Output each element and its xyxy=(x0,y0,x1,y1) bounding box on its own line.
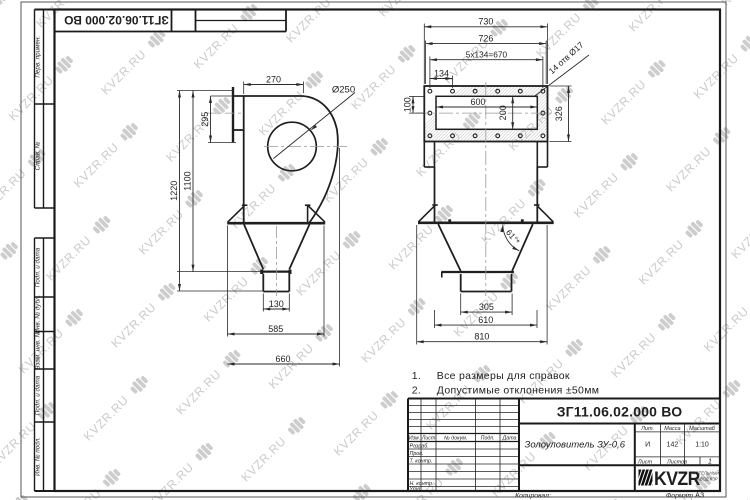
svg-text:И: И xyxy=(645,442,650,449)
svg-text:Дата: Дата xyxy=(502,436,517,442)
svg-text:Перв. примен.: Перв. примен. xyxy=(35,36,42,78)
svg-text:142: 142 xyxy=(667,442,679,449)
svg-text:100: 100 xyxy=(403,97,413,112)
svg-text:Все размеры для справок: Все размеры для справок xyxy=(437,370,570,382)
svg-text:134: 134 xyxy=(434,68,449,78)
svg-text:585: 585 xyxy=(268,324,283,334)
svg-text:726: 726 xyxy=(478,33,493,43)
svg-text:КОТЕЛЬНЫЙ: КОТЕЛЬНЫЙ xyxy=(693,471,719,476)
svg-text:326: 326 xyxy=(554,106,564,121)
svg-text:Справ. №: Справ. № xyxy=(35,142,42,171)
svg-text:1220: 1220 xyxy=(169,181,179,201)
svg-text:Формат: Формат xyxy=(666,492,693,499)
svg-text:ЗГ11.06.02.000 ВО: ЗГ11.06.02.000 ВО xyxy=(557,404,683,420)
svg-text:Лист: Лист xyxy=(421,436,436,442)
svg-text:1.: 1. xyxy=(412,370,421,382)
svg-text:Подп. и дата: Подп. и дата xyxy=(34,375,42,415)
svg-text:Лит.: Лит. xyxy=(640,426,654,432)
svg-text:810: 810 xyxy=(474,332,489,342)
svg-text:Пров.: Пров. xyxy=(410,451,424,457)
svg-text:600: 600 xyxy=(470,97,485,107)
svg-text:ЗГ11.06.02.000 ВО: ЗГ11.06.02.000 ВО xyxy=(64,13,169,27)
svg-text:Т. контр.: Т. контр. xyxy=(410,459,433,465)
svg-text:Подп.: Подп. xyxy=(481,436,495,442)
svg-text:130: 130 xyxy=(269,299,284,309)
svg-text:Масштаб: Масштаб xyxy=(689,426,716,432)
svg-text:1100: 1100 xyxy=(183,171,193,190)
svg-text:№ докум.: № докум. xyxy=(444,436,467,442)
svg-text:270: 270 xyxy=(266,74,281,84)
svg-text:Масса: Масса xyxy=(664,426,680,432)
svg-text:Листов: Листов xyxy=(666,459,687,465)
svg-text:Взам. инв. №: Взам. инв. № xyxy=(35,331,42,370)
svg-text:Инв. № дубл.: Инв. № дубл. xyxy=(34,295,42,334)
svg-text:Копировал:: Копировал: xyxy=(515,492,551,499)
svg-text:610: 610 xyxy=(478,315,493,325)
svg-text:2.: 2. xyxy=(412,384,421,396)
svg-text:1: 1 xyxy=(708,459,712,466)
svg-text:Разраб.: Разраб. xyxy=(410,444,429,450)
svg-text:1:10: 1:10 xyxy=(695,442,709,449)
svg-text:Ø250: Ø250 xyxy=(332,85,355,96)
svg-text:660: 660 xyxy=(275,354,290,364)
svg-text:Изм.: Изм. xyxy=(409,436,420,442)
svg-text:Подп. и дата: Подп. и дата xyxy=(34,247,42,287)
svg-text:295: 295 xyxy=(200,112,210,127)
svg-text:Золоуловитель ЗУ-0,6: Золоуловитель ЗУ-0,6 xyxy=(525,439,626,450)
svg-text:305: 305 xyxy=(479,302,494,312)
svg-text:730: 730 xyxy=(478,17,493,27)
svg-text:5х134=670: 5х134=670 xyxy=(466,50,508,60)
svg-text:Допустимые отклонения ±50мм: Допустимые отклонения ±50мм xyxy=(437,384,599,396)
svg-text:Лист: Лист xyxy=(637,459,653,465)
svg-text:200: 200 xyxy=(498,105,508,120)
svg-text:А3: А3 xyxy=(695,490,704,499)
svg-text:Утв.: Утв. xyxy=(410,486,422,492)
svg-text:Инв. № подл.: Инв. № подл. xyxy=(34,437,42,476)
svg-text:ЗАВОД КЗР: ЗАВОД КЗР xyxy=(694,477,717,482)
